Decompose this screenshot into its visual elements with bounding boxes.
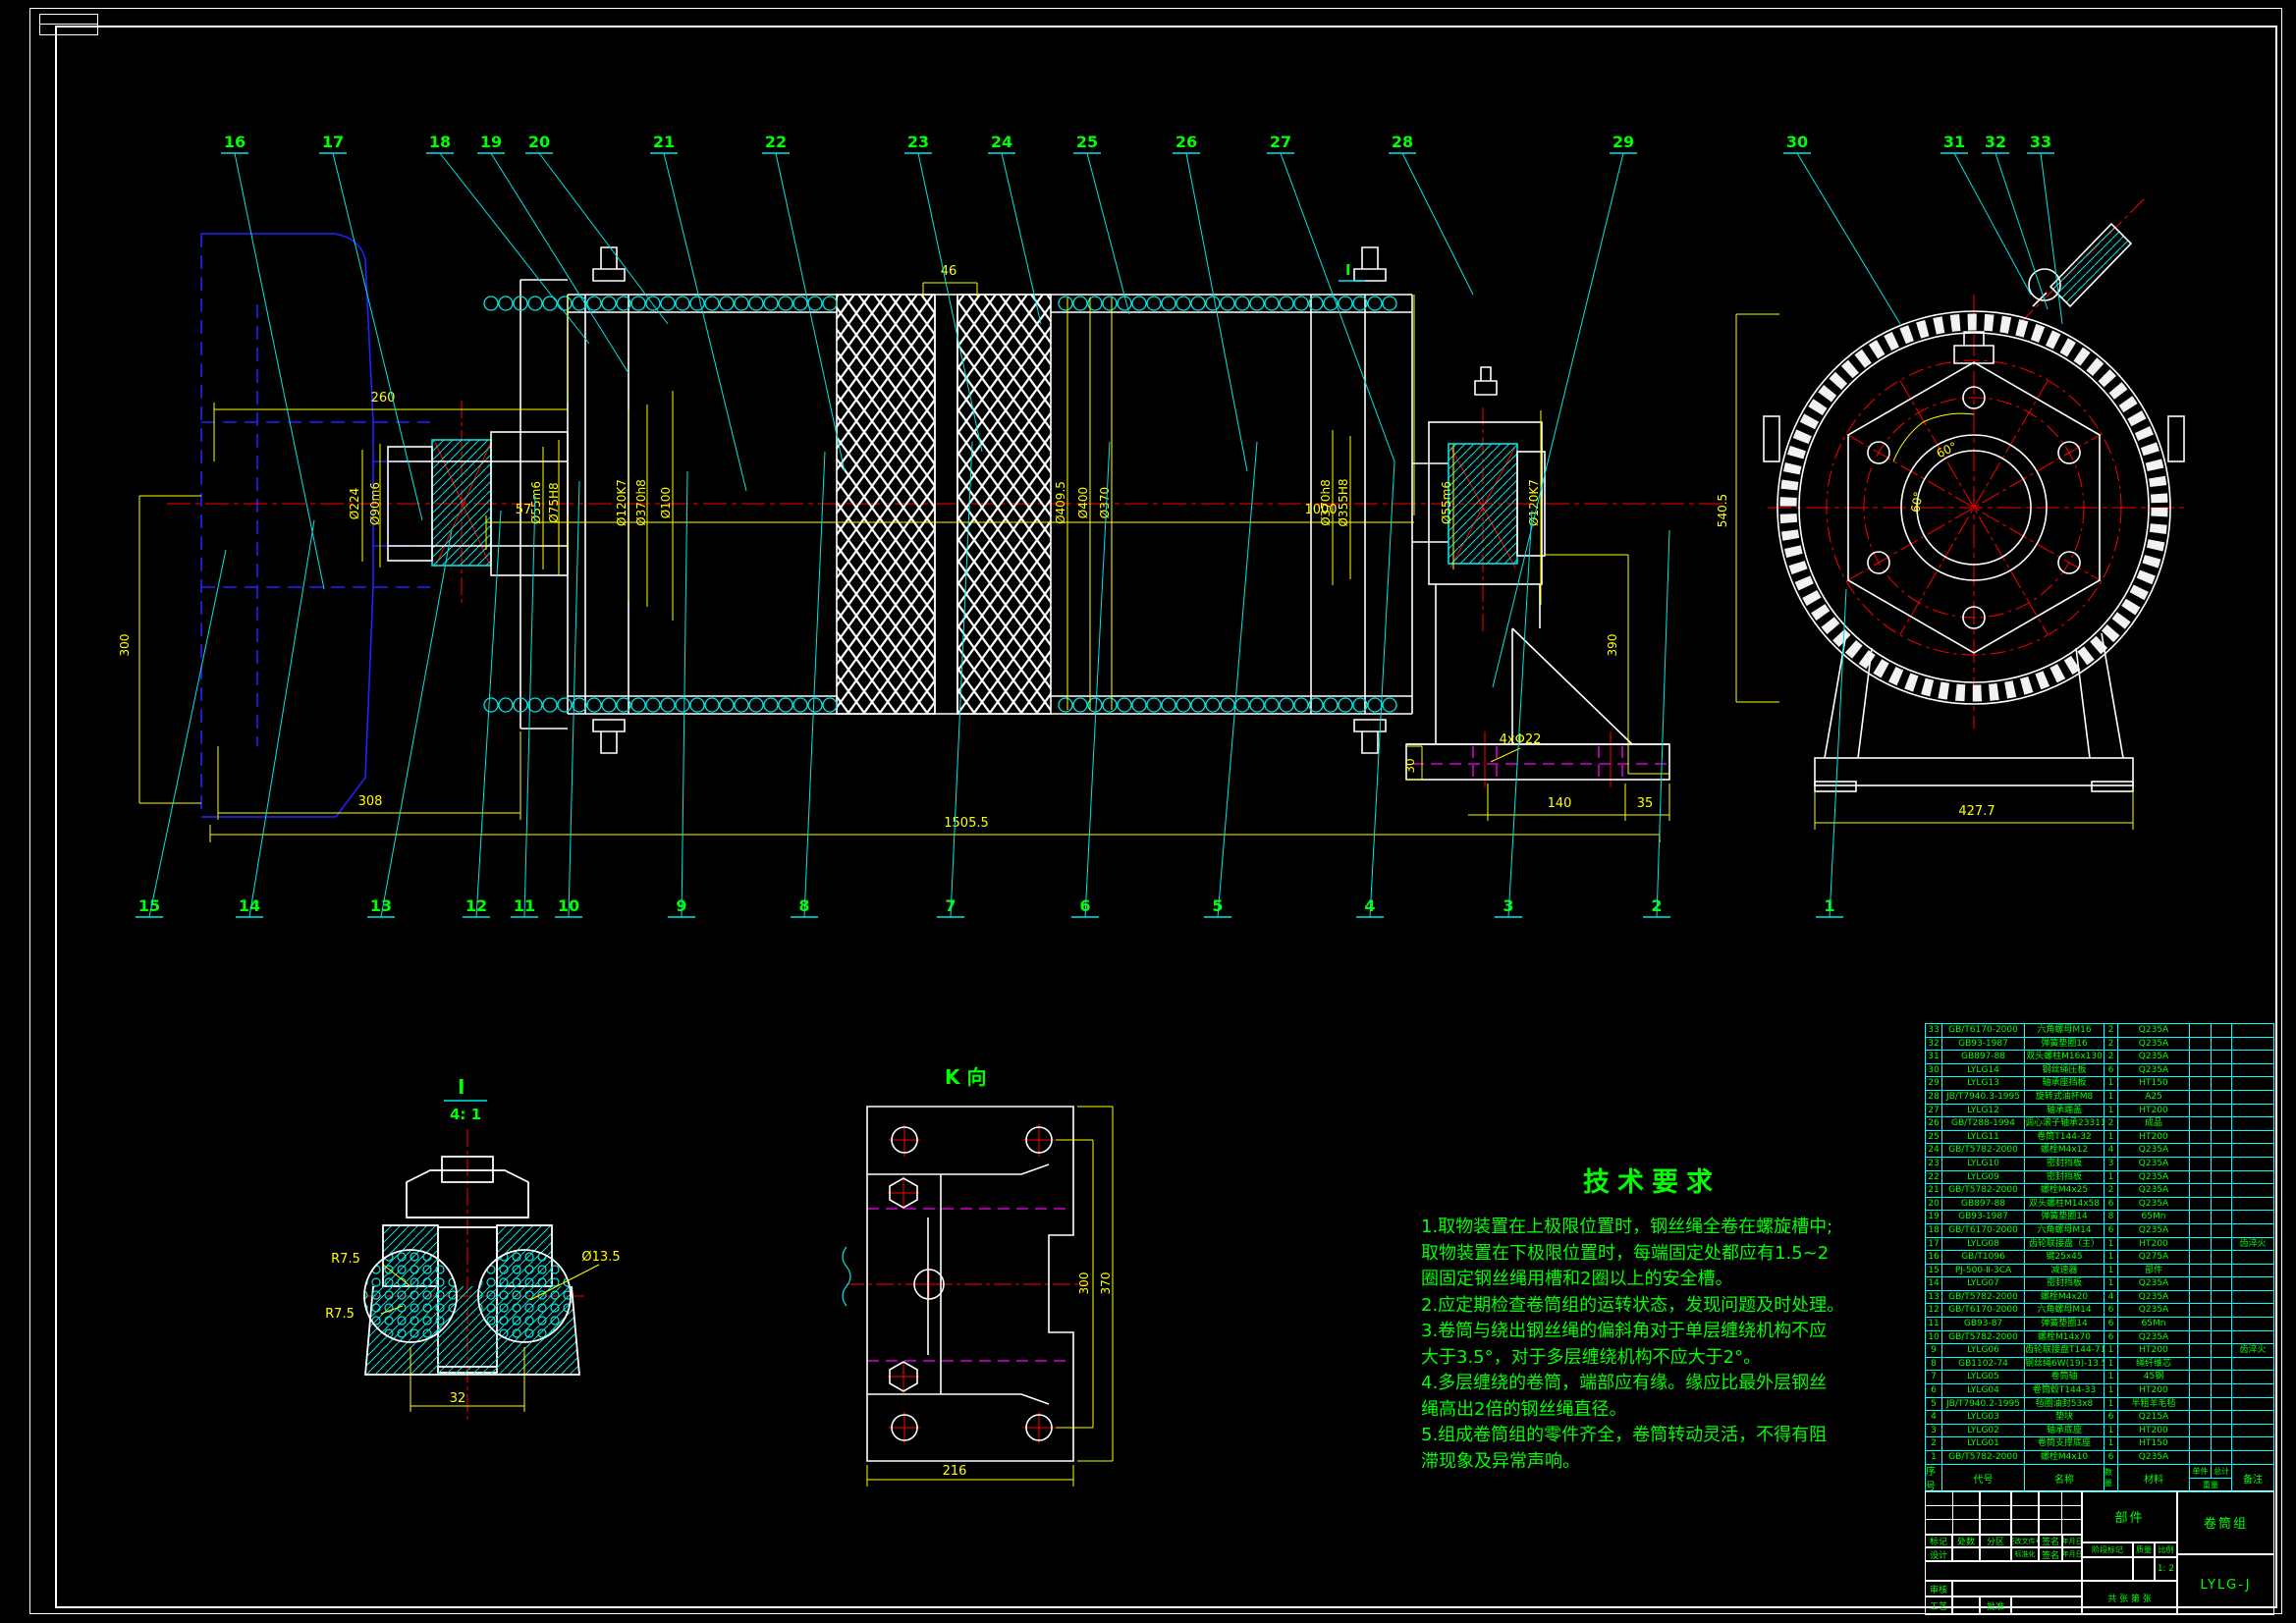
bom-cell: 轴承底座 (2025, 1425, 2105, 1438)
bom-cell (2190, 1224, 2212, 1238)
bom-cell (2232, 1371, 2274, 1384)
label-process: 工艺 (1925, 1596, 1952, 1615)
bom-cell: 六角螺母M16 (2025, 1024, 2105, 1038)
bom-cell: GB/T6170-2000 (1942, 1024, 2025, 1038)
bom-cell: 6 (2105, 1198, 2118, 1212)
bom-cell: 6 (2105, 1451, 2118, 1465)
bom-cell: 1 (2105, 1265, 2118, 1278)
bom-cell: 6 (2105, 1064, 2118, 1078)
bom-cell (2212, 1024, 2232, 1038)
bom-cell (2232, 1077, 2274, 1091)
bom-row-12: 12GB/T6170-2000六角螺母M146Q235A (1925, 1304, 2274, 1318)
bom-cell (2190, 1384, 2212, 1398)
label-mark: 标记 (1925, 1535, 1952, 1547)
bom-cell: LYLG13 (1942, 1077, 2025, 1091)
bom-cell (2232, 1171, 2274, 1185)
bom-cell (2212, 1105, 2232, 1118)
bom-row-18: 18GB/T6170-2000六角螺母M146Q235A (1925, 1224, 2274, 1238)
bom-cell: 31 (1925, 1051, 1942, 1064)
bom-cell (2190, 1171, 2212, 1185)
bom-cell: 螺栓M4x12 (2025, 1144, 2105, 1158)
tech-req-line-1: 1.取物装置在上极限位置时，钢丝绳全卷在螺旋槽中; (1421, 1215, 1843, 1241)
bom-row-16: 16GB/T1096键25x451Q275A (1925, 1251, 2274, 1265)
bom-cell: LYLG08 (1942, 1238, 2025, 1252)
label-stage-mark: 阶段标记 (2082, 1542, 2133, 1557)
label-sign: 签名 (2039, 1535, 2062, 1547)
bom-cell (2232, 1331, 2274, 1345)
bom-row-2: 2LYLG01卷筒支撑底座1HT150 (1925, 1437, 2274, 1451)
bom-cell (2232, 1131, 2274, 1145)
bom-cell: 8 (2105, 1211, 2118, 1224)
bom-row-3: 3LYLG02轴承底座1HT200 (1925, 1425, 2274, 1438)
label-design: 设计 (1925, 1547, 1952, 1561)
bom-row-29: 29LYLG13轴承座挡板1HT150 (1925, 1077, 2274, 1091)
tech-req-line-7: 4.多层缠绕的卷筒，端部应有缘。缘应比最外层钢丝 (1421, 1371, 1843, 1397)
label-sheets: 共 张 第 张 (2082, 1581, 2177, 1615)
bom-cell (2190, 1238, 2212, 1252)
bom-row-9: 9LYLG06齿轮联接盘T144-71（从）1HT200齿淬火 (1925, 1344, 2274, 1358)
bom-cell (2232, 1384, 2274, 1398)
bom-cell: 轴承座挡板 (2025, 1077, 2105, 1091)
bom-cell: 5 (1925, 1398, 1942, 1412)
bom-cell (2232, 1411, 2274, 1425)
bom-cell: 螺栓M4x25 (2025, 1184, 2105, 1198)
bom-cell: 卷筒T144-32 (2025, 1131, 2105, 1145)
bom-cell: 半粗羊毛毡 (2118, 1398, 2190, 1412)
bom-cell (2232, 1251, 2274, 1265)
bom-cell (2190, 1091, 2212, 1105)
bom-cell: 成品 (2118, 1117, 2190, 1131)
bom-cell: 7 (1925, 1371, 1942, 1384)
bom-cell (2212, 1425, 2232, 1438)
bom-cell: 30 (1925, 1064, 1942, 1078)
bom-cell (2212, 1171, 2232, 1185)
bom-header-no: 序号 (1925, 1465, 1942, 1492)
bom-cell: LYLG11 (1942, 1131, 2025, 1145)
bom-cell: 钢丝绳6W(19)-13.5 (2025, 1358, 2105, 1372)
bom-cell: 8 (1925, 1358, 1942, 1372)
bom-cell: 密封挡板 (2025, 1171, 2105, 1185)
bom-header-row: 序号代号名称数量材料单件总计重量备注 (1925, 1465, 2274, 1492)
label-weight: 质量 (2133, 1542, 2155, 1557)
bom-cell (2232, 1184, 2274, 1198)
bom-cell: 27 (1925, 1105, 1942, 1118)
bom-cell: 2 (2105, 1184, 2118, 1198)
bom-cell: Q235A (2118, 1277, 2190, 1291)
bom-cell: 垫块 (2025, 1411, 2105, 1425)
bom-row-19: 19GB93-1987弹簧垫圈14865Mn (1925, 1211, 2274, 1224)
bom-row-20: 20GB897-88双头螺柱M14x586Q235A (1925, 1198, 2274, 1212)
bom-cell: 减速器 (2025, 1265, 2105, 1278)
bom-cell: 键25x45 (2025, 1251, 2105, 1265)
bom-cell (2212, 1318, 2232, 1331)
bom-cell: GB897-88 (1942, 1051, 2025, 1064)
bom-cell: 1 (2105, 1131, 2118, 1145)
bom-cell (2232, 1091, 2274, 1105)
bom-row-30: 30LYLG14钢丝绳压板6Q235A (1925, 1064, 2274, 1078)
bom-cell: 9 (1925, 1344, 1942, 1358)
bom-row-5: 5JB/T7940.2-1995毡圈油封53x81半粗羊毛毡 (1925, 1398, 2274, 1412)
bom-cell (2190, 1117, 2212, 1131)
label-date2: 年月日 (2062, 1547, 2082, 1561)
bom-cell: 1 (2105, 1398, 2118, 1412)
bom-row-15: 15PJ-500-Ⅱ-3CA减速器1部件 (1925, 1265, 2274, 1278)
bom-cell (2232, 1425, 2274, 1438)
bom-cell: Q275A (2118, 1251, 2190, 1265)
bom-table: 33GB/T6170-2000六角螺母M162Q235A32GB93-1987弹… (1925, 1023, 2274, 1492)
bom-row-23: 23LYLG10密封挡板3Q235A (1925, 1158, 2274, 1171)
bom-cell (2190, 1318, 2212, 1331)
bom-cell (2212, 1184, 2232, 1198)
bom-cell (2212, 1144, 2232, 1158)
bom-cell: Q235A (2118, 1291, 2190, 1305)
bom-cell: GB93-1987 (1942, 1211, 2025, 1224)
bom-cell (2212, 1304, 2232, 1318)
bom-cell: 1 (2105, 1105, 2118, 1118)
bom-header-remark: 备注 (2232, 1465, 2274, 1492)
bom-cell: 4 (1925, 1411, 1942, 1425)
bom-cell (2212, 1451, 2232, 1465)
bom-cell: 1 (2105, 1091, 2118, 1105)
bom-header-qty: 数量 (2105, 1465, 2118, 1492)
bom-cell: 1 (2105, 1077, 2118, 1091)
bom-cell: 2 (2105, 1117, 2118, 1131)
bom-cell: 螺栓M4x20 (2025, 1291, 2105, 1305)
bom-cell: LYLG09 (1942, 1171, 2025, 1185)
bom-cell: 3 (2105, 1158, 2118, 1171)
bom-header-code: 代号 (1942, 1465, 2025, 1492)
label-standard: 标准化 (2011, 1547, 2039, 1561)
bom-cell: 弹簧垫圈14 (2025, 1318, 2105, 1331)
bom-cell (2190, 1451, 2212, 1465)
bom-cell: HT150 (2118, 1437, 2190, 1451)
bom-cell: GB/T5782-2000 (1942, 1451, 2025, 1465)
bom-cell: GB/T5782-2000 (1942, 1184, 2025, 1198)
bom-header-name: 名称 (2025, 1465, 2105, 1492)
bom-cell: Q235A (2118, 1064, 2190, 1078)
bom-cell (2212, 1064, 2232, 1078)
bom-cell (2212, 1077, 2232, 1091)
bom-cell (2232, 1358, 2274, 1372)
bom-cell: 2 (2105, 1038, 2118, 1052)
bom-cell (2232, 1024, 2274, 1038)
bom-cell: 1 (2105, 1358, 2118, 1372)
bom-cell (2212, 1251, 2232, 1265)
bom-cell (2232, 1304, 2274, 1318)
bom-cell (2190, 1371, 2212, 1384)
bom-cell: HT200 (2118, 1105, 2190, 1118)
label-audit: 审核 (1925, 1581, 1952, 1596)
bom-cell: 6 (2105, 1411, 2118, 1425)
bom-cell: 2 (2105, 1024, 2118, 1038)
bom-cell: 4 (2105, 1144, 2118, 1158)
bom-cell: 齿轮联接盘（主） (2025, 1238, 2105, 1252)
bom-cell: 23 (1925, 1158, 1942, 1171)
technical-requirements-title: 技术要求 (1460, 1161, 1843, 1199)
bom-cell (2190, 1277, 2212, 1291)
bom-cell: HT200 (2118, 1384, 2190, 1398)
bom-cell: 密封挡板 (2025, 1277, 2105, 1291)
bom-cell: Q235A (2118, 1158, 2190, 1171)
label-sign2: 签名 (2039, 1547, 2062, 1561)
bom-cell (2232, 1224, 2274, 1238)
bom-row-25: 25LYLG11卷筒T144-321HT200 (1925, 1131, 2274, 1145)
bom-cell: LYLG10 (1942, 1158, 2025, 1171)
bom-cell (2212, 1358, 2232, 1372)
bom-cell (2212, 1051, 2232, 1064)
bom-cell (2232, 1144, 2274, 1158)
bom-cell: Q235A (2118, 1171, 2190, 1185)
bom-cell: 毡圈油封53x8 (2025, 1398, 2105, 1412)
bom-row-1: 1GB/T5782-2000螺栓M4x106Q235A (1925, 1451, 2274, 1465)
bom-cell: HT150 (2118, 1077, 2190, 1091)
bom-header-material: 材料 (2118, 1465, 2190, 1492)
bom-cell: 密封挡板 (2025, 1158, 2105, 1171)
bom-cell: JB/T7940.3-1995 (1942, 1091, 2025, 1105)
bom-cell (2190, 1105, 2212, 1118)
bom-row-33: 33GB/T6170-2000六角螺母M162Q235A (1925, 1024, 2274, 1038)
bom-cell (2190, 1251, 2212, 1265)
bom-cell (2212, 1131, 2232, 1145)
bom-cell: 19 (1925, 1211, 1942, 1224)
product-name: 卷筒组 (2177, 1490, 2274, 1554)
bom-cell: 1 (2105, 1437, 2118, 1451)
label-scale: 比例 (2155, 1542, 2177, 1557)
bom-cell: 钢丝绳压板 (2025, 1064, 2105, 1078)
bom-cell: 卷筒毂T144-33 (2025, 1384, 2105, 1398)
bom-cell: A25 (2118, 1091, 2190, 1105)
bom-cell: 22 (1925, 1171, 1942, 1185)
bom-cell: 33 (1925, 1024, 1942, 1038)
bom-cell: GB/T6170-2000 (1942, 1224, 2025, 1238)
bom-cell (2232, 1398, 2274, 1412)
bom-cell: GB/T5782-2000 (1942, 1331, 2025, 1345)
bom-row-10: 10GB/T5782-2000螺栓M14x706Q235A (1925, 1331, 2274, 1345)
bom-cell (2190, 1064, 2212, 1078)
bom-cell: Q235A (2118, 1144, 2190, 1158)
bom-cell: HT200 (2118, 1425, 2190, 1438)
bom-cell: 29 (1925, 1077, 1942, 1091)
tech-req-line-5: 3.卷筒与绕出钢丝绳的偏斜角对于单层缠绕机构不应 (1421, 1319, 1843, 1345)
bom-cell: 双头螺柱M16x130 (2025, 1051, 2105, 1064)
bom-cell (2190, 1398, 2212, 1412)
bom-row-27: 27LYLG12轴承端盖1HT200 (1925, 1105, 2274, 1118)
title-block: 标记 处数 分区 更改文件号 签名 年月日 设计 标准化 签名 年月日 审核 工… (1925, 1490, 2274, 1615)
bom-cell: 1 (2105, 1371, 2118, 1384)
bom-cell: 14 (1925, 1277, 1942, 1291)
bom-cell: LYLG12 (1942, 1105, 2025, 1118)
bom-cell (2232, 1105, 2274, 1118)
bom-cell: GB/T288-1994 (1942, 1117, 2025, 1131)
bom-cell: Q235A (2118, 1224, 2190, 1238)
bom-cell: 1 (2105, 1384, 2118, 1398)
bom-cell (2232, 1318, 2274, 1331)
bom-cell: 6 (1925, 1384, 1942, 1398)
bom-cell: Q235A (2118, 1051, 2190, 1064)
bom-cell (2212, 1384, 2232, 1398)
label-approve: 批准 (1980, 1596, 2011, 1615)
bom-cell: 1 (2105, 1344, 2118, 1358)
cad-sheet: 260571000463003081505.5390540.5427.71403… (0, 0, 2296, 1623)
bom-cell: 17 (1925, 1238, 1942, 1252)
bom-cell: 齿淬火 (2232, 1344, 2274, 1358)
bom-cell: GB/T5782-2000 (1942, 1144, 2025, 1158)
bom-cell: GB93-87 (1942, 1318, 2025, 1331)
bom-cell: 2 (1925, 1437, 1942, 1451)
bom-cell: 25 (1925, 1131, 1942, 1145)
bom-cell (2190, 1158, 2212, 1171)
bom-cell: HT200 (2118, 1344, 2190, 1358)
bom-cell (2232, 1117, 2274, 1131)
bom-cell (2212, 1291, 2232, 1305)
bom-cell (2232, 1051, 2274, 1064)
bom-cell (2190, 1358, 2212, 1372)
bom-cell (2212, 1224, 2232, 1238)
bom-cell: 弹簧垫圈16 (2025, 1038, 2105, 1052)
bom-cell: 齿轮联接盘T144-71（从） (2025, 1344, 2105, 1358)
bom-cell (2190, 1051, 2212, 1064)
bom-cell (2212, 1411, 2232, 1425)
bom-cell: 六角螺母M14 (2025, 1304, 2105, 1318)
bom-header-unit: 单件 (2190, 1465, 2212, 1479)
bom-cell: 轴承端盖 (2025, 1105, 2105, 1118)
bom-cell (2190, 1038, 2212, 1052)
bom-cell (2212, 1398, 2232, 1412)
bom-cell: 旋转式油杯M8 (2025, 1091, 2105, 1105)
bom-cell (2212, 1091, 2232, 1105)
bom-cell: 16 (1925, 1251, 1942, 1265)
bom-cell (2232, 1437, 2274, 1451)
bom-cell: 1 (2105, 1277, 2118, 1291)
bom-cell: 3 (1925, 1425, 1942, 1438)
bom-row-28: 28JB/T7940.3-1995旋转式油杯M81A25 (1925, 1091, 2274, 1105)
bom-cell: 六角螺母M14 (2025, 1224, 2105, 1238)
bom-row-31: 31GB897-88双头螺柱M16x1302Q235A (1925, 1051, 2274, 1064)
bom-cell: PJ-500-Ⅱ-3CA (1942, 1265, 2025, 1278)
bom-cell: 15 (1925, 1265, 1942, 1278)
bom-row-14: 14LYLG07密封挡板1Q235A (1925, 1277, 2274, 1291)
bom-cell: Q235A (2118, 1304, 2190, 1318)
bom-row-24: 24GB/T5782-2000螺栓M4x124Q235A (1925, 1144, 2274, 1158)
bom-cell (2190, 1184, 2212, 1198)
drawing-code: LYLG-J (2177, 1554, 2274, 1615)
tech-req-line-6: 大于3.5°，对于多层缠绕机构不应大于2°。 (1421, 1345, 1843, 1372)
tech-req-line-3: 圈固定钢丝绳用槽和2圈以上的安全槽。 (1421, 1267, 1843, 1293)
bom-cell (2212, 1158, 2232, 1171)
bom-cell: 1 (2105, 1251, 2118, 1265)
bom-cell (2190, 1291, 2212, 1305)
bom-header-weight-group: 单件总计重量 (2190, 1465, 2232, 1492)
bom-cell: GB93-1987 (1942, 1038, 2025, 1052)
bom-cell: 1 (2105, 1171, 2118, 1185)
bom-row-13: 13GB/T5782-2000螺栓M4x204Q235A (1925, 1291, 2274, 1305)
bom-cell: 6 (2105, 1304, 2118, 1318)
bom-cell: GB897-88 (1942, 1198, 2025, 1212)
bom-cell: 18 (1925, 1224, 1942, 1238)
bom-cell: 弹簧垫圈14 (2025, 1211, 2105, 1224)
bom-cell (2212, 1265, 2232, 1278)
bom-cell (2232, 1265, 2274, 1278)
bom-cell: 双头螺柱M14x58 (2025, 1198, 2105, 1212)
bom-cell: 28 (1925, 1091, 1942, 1105)
bom-row-8: 8GB1102-74钢丝绳6W(19)-13.51绳纤维芯 (1925, 1358, 2274, 1372)
bom-cell (2232, 1158, 2274, 1171)
bom-cell: 32 (1925, 1038, 1942, 1052)
bom-cell: Q235A (2118, 1198, 2190, 1212)
bom-cell (2190, 1437, 2212, 1451)
bom-cell (2232, 1038, 2274, 1052)
bom-cell (2212, 1277, 2232, 1291)
bom-cell: 2 (2105, 1051, 2118, 1064)
bom-cell (2190, 1425, 2212, 1438)
tech-req-line-9: 5.组成卷筒组的零件齐全，卷筒转动灵活，不得有阻 (1421, 1423, 1843, 1449)
tech-req-line-2: 取物装置在下极限位置时，每端固定处都应有1.5~2 (1421, 1241, 1843, 1268)
bom-cell: 45钢 (2118, 1371, 2190, 1384)
bom-row-17: 17LYLG08齿轮联接盘（主）1HT200齿淬火 (1925, 1238, 2274, 1252)
bom-cell: Q235A (2118, 1038, 2190, 1052)
bom-cell: 65Mn (2118, 1211, 2190, 1224)
sheet-corner-box (39, 14, 98, 35)
bom-row-11: 11GB93-87弹簧垫圈14665Mn (1925, 1318, 2274, 1331)
bom-cell (2190, 1411, 2212, 1425)
scale-value: 1: 2 (2155, 1557, 2177, 1581)
bom-row-32: 32GB93-1987弹簧垫圈162Q235A (1925, 1038, 2274, 1052)
bom-cell: 6 (2105, 1331, 2118, 1345)
bom-cell: LYLG07 (1942, 1277, 2025, 1291)
bom-cell: Q235A (2118, 1331, 2190, 1345)
bom-cell (2232, 1211, 2274, 1224)
bom-cell: HT200 (2118, 1238, 2190, 1252)
bom-cell: 卷筒支撑底座 (2025, 1437, 2105, 1451)
bom-cell: GB/T5782-2000 (1942, 1291, 2025, 1305)
bom-cell: 24 (1925, 1144, 1942, 1158)
bom-cell (2212, 1331, 2232, 1345)
bom-row-22: 22LYLG09密封挡板1Q235A (1925, 1171, 2274, 1185)
bom-cell (2232, 1198, 2274, 1212)
bom-cell (2190, 1331, 2212, 1345)
bom-cell: 11 (1925, 1318, 1942, 1331)
bom-cell: HT200 (2118, 1131, 2190, 1145)
bom-cell (2212, 1211, 2232, 1224)
bom-cell (2212, 1344, 2232, 1358)
bom-cell (2232, 1064, 2274, 1078)
bom-cell: 螺栓M4x10 (2025, 1451, 2105, 1465)
bom-cell: 齿淬火 (2232, 1238, 2274, 1252)
bom-cell: 26 (1925, 1117, 1942, 1131)
bom-cell: Q215A (2118, 1411, 2190, 1425)
bom-cell: GB/T1096 (1942, 1251, 2025, 1265)
bom-cell (2190, 1211, 2212, 1224)
bom-header-total: 总计 (2212, 1465, 2232, 1479)
bom-cell: JB/T7940.2-1995 (1942, 1398, 2025, 1412)
bom-cell: 65Mn (2118, 1318, 2190, 1331)
bom-cell (2190, 1344, 2212, 1358)
bom-cell: 4 (2105, 1291, 2118, 1305)
bom-cell (2212, 1437, 2232, 1451)
bom-row-6: 6LYLG04卷筒毂T144-331HT200 (1925, 1384, 2274, 1398)
bom-cell: Q235A (2118, 1451, 2190, 1465)
bom-cell (2190, 1131, 2212, 1145)
bom-cell: 1 (2105, 1425, 2118, 1438)
bom-cell: LYLG14 (1942, 1064, 2025, 1078)
bom-cell: 绳纤维芯 (2118, 1358, 2190, 1372)
bom-cell: 12 (1925, 1304, 1942, 1318)
bom-cell: GB1102-74 (1942, 1358, 2025, 1372)
bom-cell: 20 (1925, 1198, 1942, 1212)
part-type: 部件 (2082, 1490, 2177, 1542)
bom-row-21: 21GB/T5782-2000螺栓M4x252Q235A (1925, 1184, 2274, 1198)
bom-row-7: 7LYLG05卷筒轴145钢 (1925, 1371, 2274, 1384)
